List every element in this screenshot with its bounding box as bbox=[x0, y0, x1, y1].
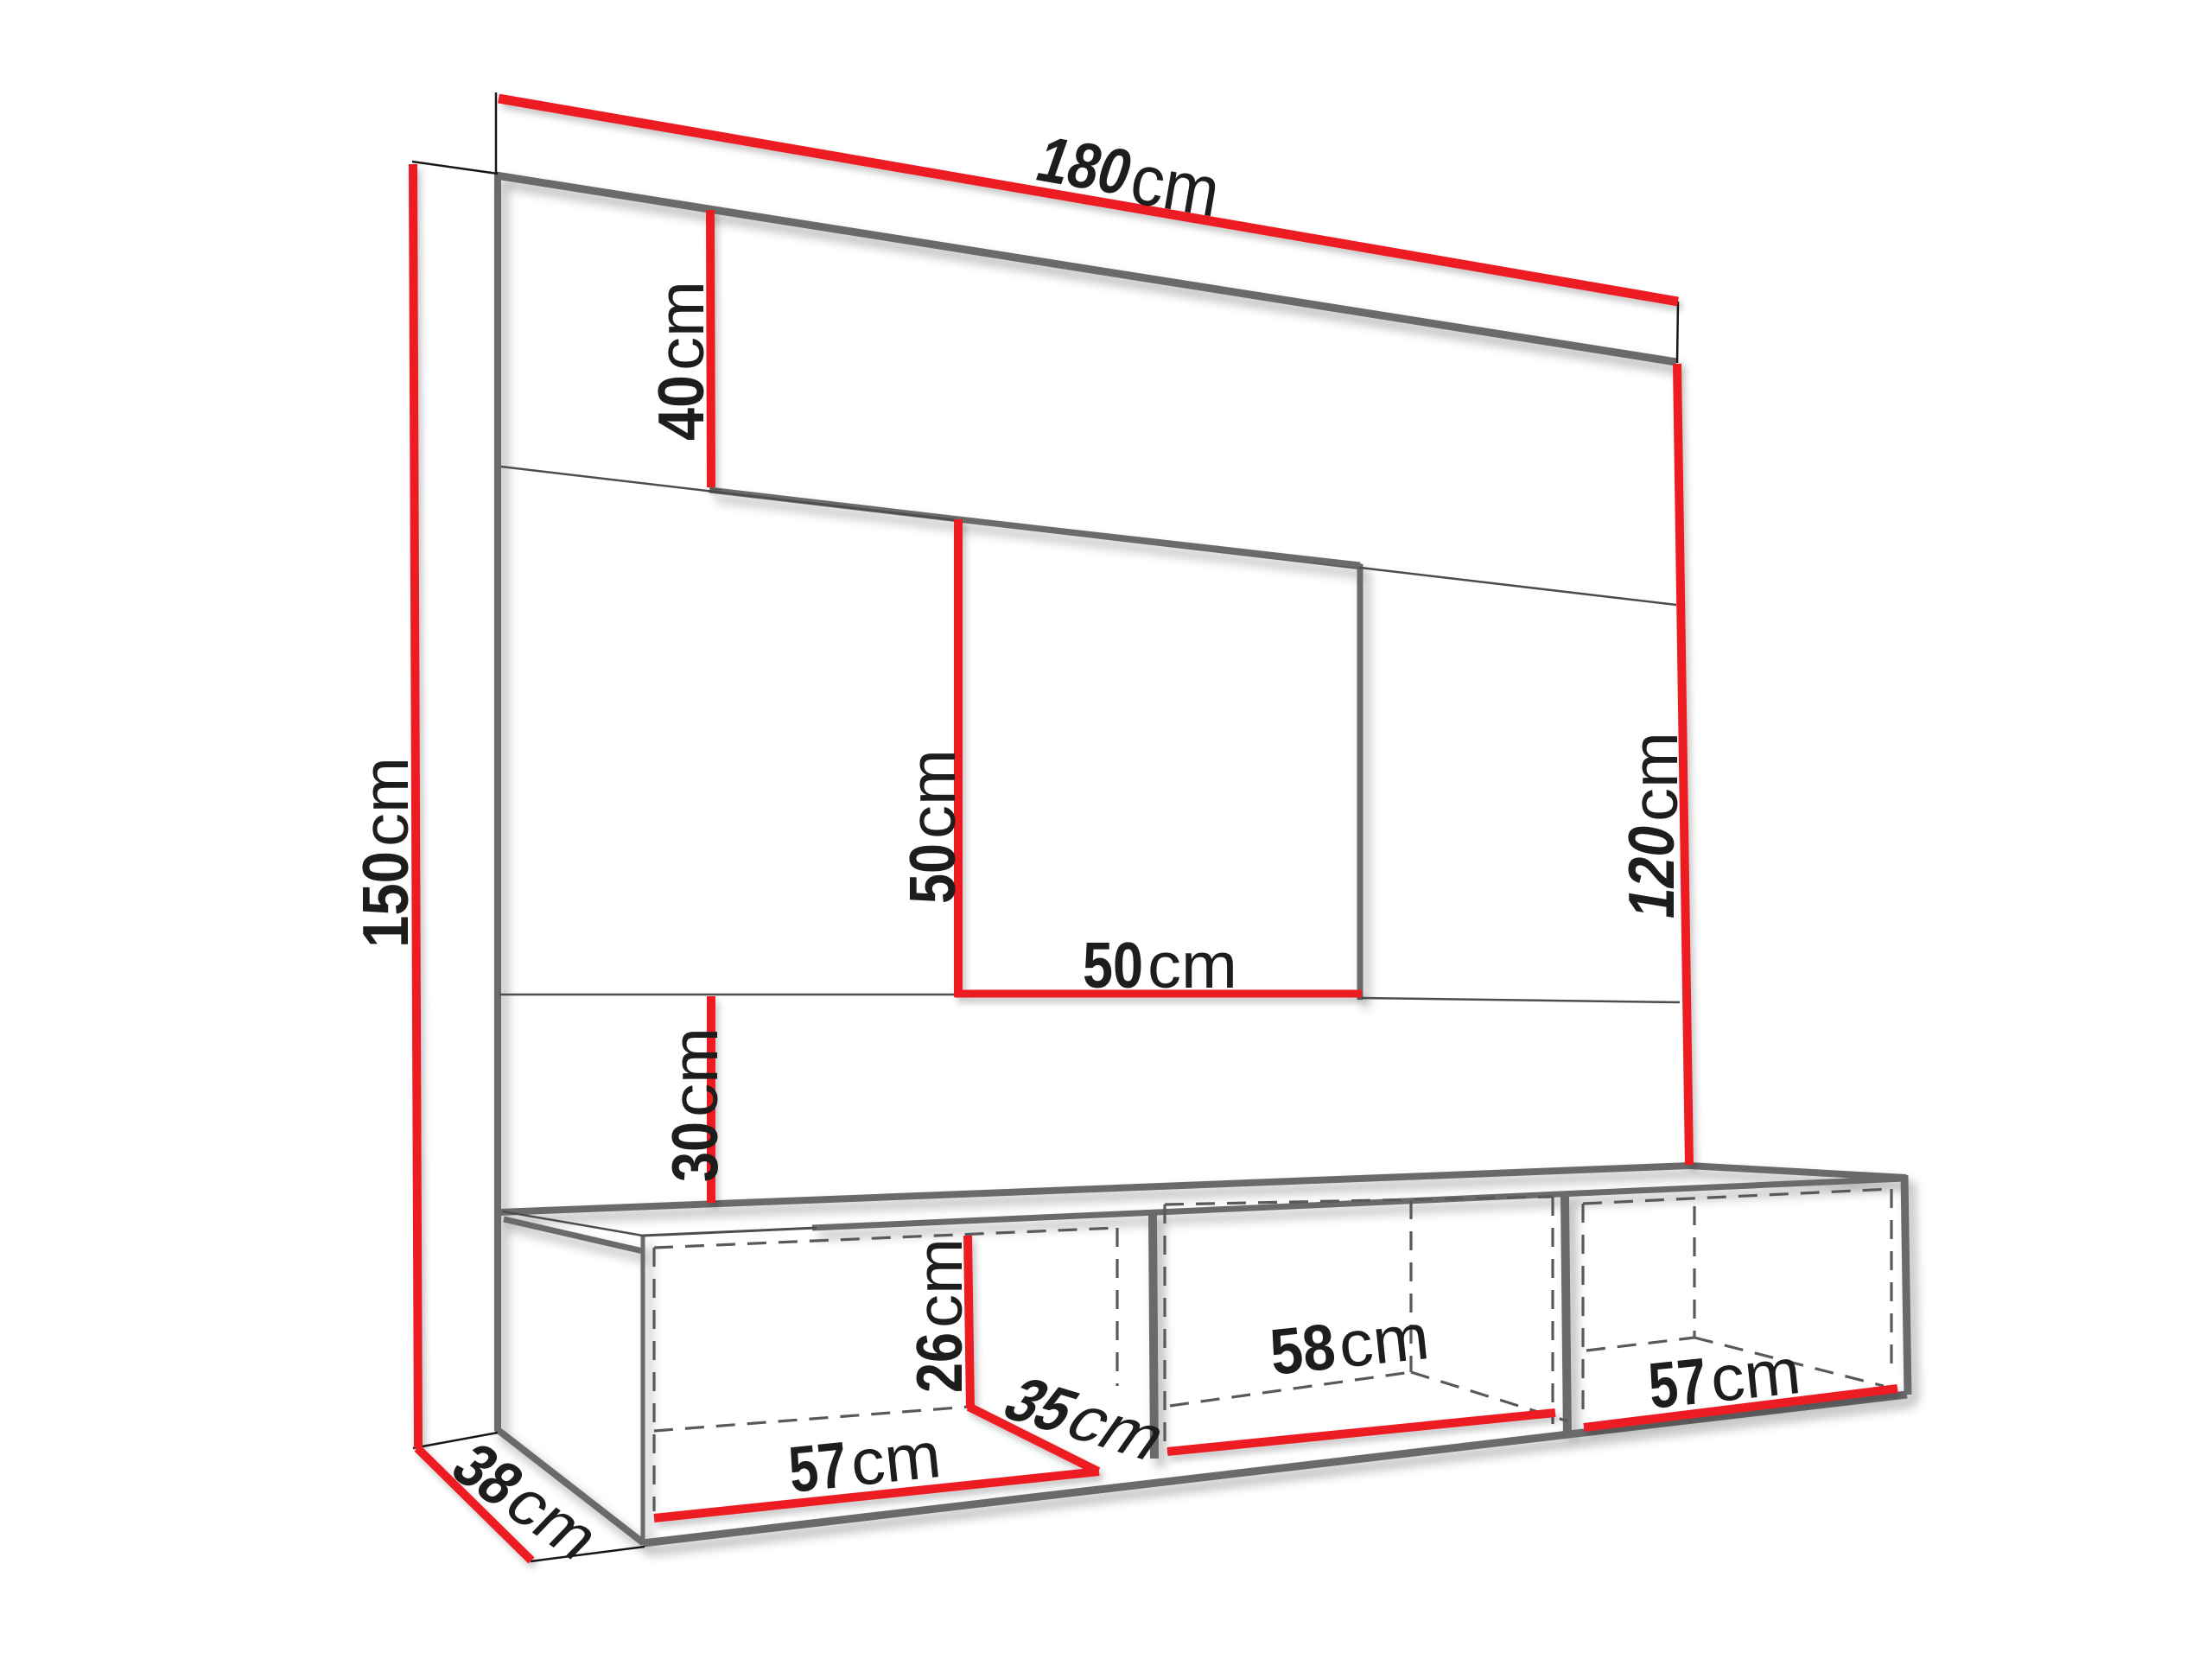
svg-text:30cm: 30cm bbox=[658, 1027, 731, 1182]
svg-text:50cm: 50cm bbox=[1083, 929, 1237, 1001]
svg-text:150cm: 150cm bbox=[349, 757, 422, 948]
svg-text:40cm: 40cm bbox=[645, 281, 717, 441]
svg-text:50cm: 50cm bbox=[896, 749, 969, 904]
svg-text:26cm: 26cm bbox=[903, 1238, 976, 1393]
